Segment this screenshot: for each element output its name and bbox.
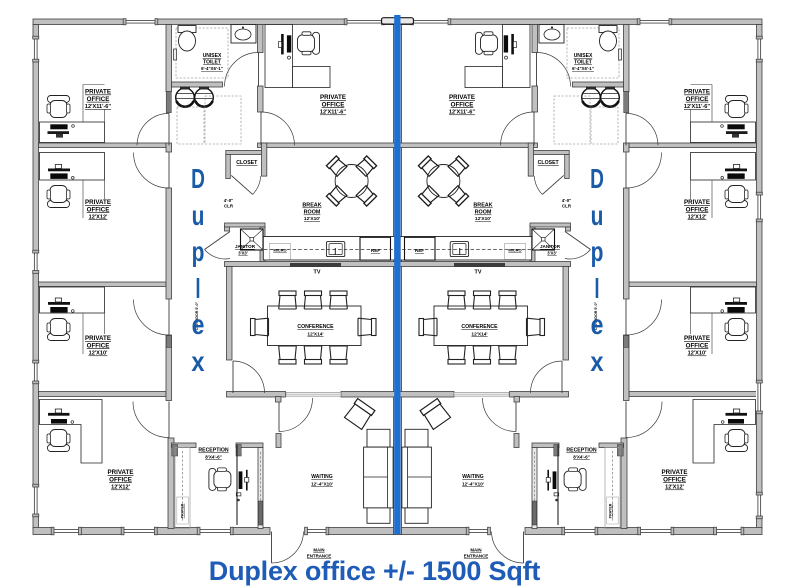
svg-text:4'-0": 4'-0" xyxy=(562,198,571,203)
svg-text:e: e xyxy=(192,309,205,340)
svg-text:OFFICE: OFFICE xyxy=(87,206,110,213)
svg-text:OFFICE: OFFICE xyxy=(451,101,474,108)
svg-text:12'-4"X10': 12'-4"X10' xyxy=(311,482,333,487)
svg-text:PRAYER: PRAYER xyxy=(181,503,185,518)
svg-text:CLOSET: CLOSET xyxy=(236,160,258,166)
svg-text:BREAK: BREAK xyxy=(473,203,492,209)
svg-text:PRIVATE: PRIVATE xyxy=(684,199,710,206)
svg-text:TV: TV xyxy=(475,270,482,276)
svg-text:ROOM: ROOM xyxy=(475,210,492,216)
svg-text:TOILET: TOILET xyxy=(203,60,221,66)
svg-text:PRIVATE: PRIVATE xyxy=(85,335,111,342)
svg-text:PRIVATE: PRIVATE xyxy=(85,199,111,206)
svg-text:PRIVATE: PRIVATE xyxy=(108,469,134,476)
svg-text:WAITING: WAITING xyxy=(311,474,332,480)
svg-text:PRAYER: PRAYER xyxy=(609,503,613,518)
svg-text:PRIVATE: PRIVATE xyxy=(662,469,688,476)
svg-text:RECEPTION: RECEPTION xyxy=(566,448,597,454)
svg-text:12'X12': 12'X12' xyxy=(89,214,109,220)
svg-text:12'X12': 12'X12' xyxy=(111,485,131,491)
svg-text:PRIVATE: PRIVATE xyxy=(684,335,710,342)
svg-text:MAIN: MAIN xyxy=(313,548,324,553)
svg-text:3'X3': 3'X3' xyxy=(547,251,556,256)
svg-text:CONFERENCE: CONFERENCE xyxy=(297,324,334,330)
svg-text:OFFICE: OFFICE xyxy=(322,101,345,108)
svg-text:MAIN: MAIN xyxy=(470,548,481,553)
svg-text:e: e xyxy=(591,309,604,340)
svg-text:TV: TV xyxy=(314,270,321,276)
svg-text:u: u xyxy=(192,200,205,231)
svg-text:6'-4"X6'-1": 6'-4"X6'-1" xyxy=(201,66,223,71)
svg-text:12'X11'-6": 12'X11'-6" xyxy=(684,104,710,110)
svg-text:OFFICE: OFFICE xyxy=(87,96,110,103)
svg-text:p: p xyxy=(591,236,604,267)
svg-text:6'-4"X6'-1": 6'-4"X6'-1" xyxy=(572,66,594,71)
svg-text:CLR: CLR xyxy=(224,204,234,209)
svg-text:12'X10': 12'X10' xyxy=(304,216,320,222)
svg-text:OFFICE: OFFICE xyxy=(686,342,709,349)
svg-text:l: l xyxy=(195,273,200,304)
svg-text:OFFICE: OFFICE xyxy=(686,96,709,103)
svg-text:REF: REF xyxy=(415,248,424,253)
svg-text:4'-0": 4'-0" xyxy=(224,198,233,203)
svg-text:p: p xyxy=(192,236,205,267)
svg-text:REF: REF xyxy=(371,248,380,253)
svg-text:UNISEX: UNISEX xyxy=(203,53,222,59)
svg-text:JANITOR: JANITOR xyxy=(235,244,256,249)
svg-text:l: l xyxy=(594,273,599,304)
svg-text:8'X4'-6": 8'X4'-6" xyxy=(205,455,222,460)
svg-text:u: u xyxy=(591,200,604,231)
svg-text:12'X12': 12'X12' xyxy=(688,214,708,220)
svg-text:12'-4"X10': 12'-4"X10' xyxy=(462,482,484,487)
svg-text:MICRO: MICRO xyxy=(273,248,286,253)
svg-text:CONFERENCE: CONFERENCE xyxy=(461,324,498,330)
svg-text:JANITOR: JANITOR xyxy=(540,244,561,249)
svg-text:12'X10': 12'X10' xyxy=(688,351,708,357)
svg-text:RECEPTION: RECEPTION xyxy=(198,448,229,454)
svg-text:12'X14': 12'X14' xyxy=(307,332,323,338)
svg-text:8'X4'-6": 8'X4'-6" xyxy=(573,455,590,460)
svg-text:CLR: CLR xyxy=(562,204,572,209)
svg-text:PRIVATE: PRIVATE xyxy=(684,89,710,96)
svg-text:12'X11'-6": 12'X11'-6" xyxy=(85,104,111,110)
svg-text:12'X10': 12'X10' xyxy=(475,216,491,222)
svg-text:Duplex office +/- 1500 Sqft: Duplex office +/- 1500 Sqft xyxy=(209,556,541,586)
svg-text:PRIVATE: PRIVATE xyxy=(320,94,346,101)
svg-text:CLOSET: CLOSET xyxy=(538,160,560,166)
svg-text:3'X3': 3'X3' xyxy=(238,251,247,256)
svg-text:BREAK: BREAK xyxy=(302,203,321,209)
svg-text:OFFICE: OFFICE xyxy=(663,476,686,483)
svg-text:OFFICE: OFFICE xyxy=(686,206,709,213)
svg-text:D: D xyxy=(191,163,205,194)
svg-text:OFFICE: OFFICE xyxy=(109,476,132,483)
svg-text:12'X14': 12'X14' xyxy=(471,332,487,338)
svg-text:MICRO: MICRO xyxy=(508,248,521,253)
svg-text:x: x xyxy=(590,346,604,377)
svg-text:WAITING: WAITING xyxy=(462,474,483,480)
svg-text:TOILET: TOILET xyxy=(574,60,592,66)
svg-text:PRIVATE: PRIVATE xyxy=(85,89,111,96)
svg-text:12'X12': 12'X12' xyxy=(665,485,685,491)
svg-text:ROOM: ROOM xyxy=(304,210,321,216)
svg-text:12'X10': 12'X10' xyxy=(89,351,109,357)
svg-text:x: x xyxy=(191,346,205,377)
svg-text:12'X11'-6": 12'X11'-6" xyxy=(320,110,346,116)
svg-text:UNISEX: UNISEX xyxy=(574,53,593,59)
svg-text:OFFICE: OFFICE xyxy=(87,342,110,349)
svg-text:12'X11'-6": 12'X11'-6" xyxy=(449,110,475,116)
svg-text:D: D xyxy=(590,163,604,194)
svg-text:PRIVATE: PRIVATE xyxy=(449,94,475,101)
